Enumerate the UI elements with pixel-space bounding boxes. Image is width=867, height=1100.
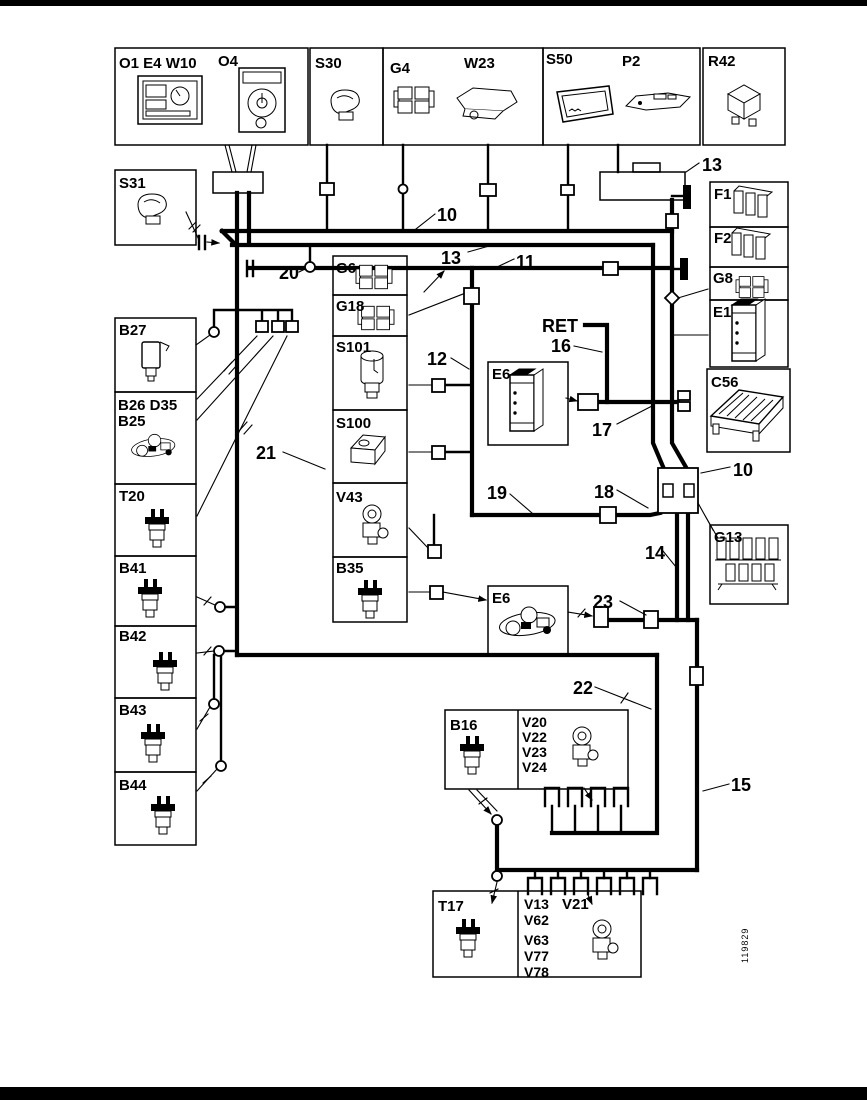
label-e6-upper: E6 xyxy=(492,366,510,383)
label-c56: C56 xyxy=(711,374,739,391)
label-b43: B43 xyxy=(119,702,147,719)
label-v24: V24 xyxy=(522,759,547,775)
wire-label-16: 16 xyxy=(551,336,571,356)
label-v13: V13 xyxy=(524,896,549,912)
label-o4: O4 xyxy=(218,53,239,70)
valve-v43-icon xyxy=(363,505,388,544)
connector-g4-icon xyxy=(394,87,434,113)
label-f1: F1 xyxy=(714,186,732,203)
wire-label-22: 22 xyxy=(573,678,593,698)
wire-label-13-mid: 13 xyxy=(441,248,461,268)
label-b26-d35: B26 D35 xyxy=(118,397,177,414)
wiring-diagram-canvas: O1 E4 W10 O4 S30 G4 W23 S50 P2 R42 S31 F… xyxy=(0,0,867,1100)
label-s100: S100 xyxy=(336,415,371,432)
fuse-f2-icon xyxy=(732,228,770,259)
relay-r42-icon xyxy=(728,85,760,126)
label-b44: B44 xyxy=(119,777,147,794)
label-s31: S31 xyxy=(119,175,146,192)
panel-s50-icon xyxy=(557,86,613,122)
connector-c56-icon xyxy=(711,390,783,441)
label-g8: G8 xyxy=(713,270,733,287)
label-s50: S50 xyxy=(546,51,573,68)
sensor-b16-icon xyxy=(460,736,484,774)
switch-s101-icon xyxy=(361,351,383,398)
ecu-e6-icon xyxy=(510,369,543,431)
label-t20: T20 xyxy=(119,488,145,505)
scan-edge-top xyxy=(0,0,867,6)
label-v20: V20 xyxy=(522,714,547,730)
switch-s30-icon xyxy=(331,90,359,120)
wire-bus-19 xyxy=(472,513,660,515)
document-number: 119829 xyxy=(740,928,750,963)
valve-v20-v24-icon xyxy=(573,727,598,766)
connector-g8-icon xyxy=(736,277,768,298)
label-b25: B25 xyxy=(118,413,146,430)
pump-e6-icon xyxy=(498,607,557,639)
switch-s31-icon xyxy=(138,194,166,224)
wire-label-21: 21 xyxy=(256,443,276,463)
instrument-cluster-icon xyxy=(138,76,202,124)
label-s101: S101 xyxy=(336,339,371,356)
label-g13: G13 xyxy=(714,529,742,546)
wire-label-18: 18 xyxy=(594,482,614,502)
label-e6-lower: E6 xyxy=(492,590,510,607)
wire-label-15: 15 xyxy=(731,775,751,795)
sensor-b41-icon xyxy=(138,579,162,617)
wire-label-13-top: 13 xyxy=(702,155,722,175)
label-g6: G6 xyxy=(336,260,356,277)
board-p2-icon xyxy=(626,93,690,110)
wire-label-23: 23 xyxy=(593,592,613,612)
control-unit-o4-icon xyxy=(239,68,285,132)
wire-label-10-top: 10 xyxy=(437,205,457,225)
sensor-t17-icon xyxy=(456,919,480,957)
wire-label-20: 20 xyxy=(279,263,299,283)
sensor-t20-icon xyxy=(145,509,169,547)
wire-label-10-right: 10 xyxy=(733,460,753,480)
unit-w23-icon xyxy=(457,88,517,119)
sensor-b43-icon xyxy=(141,724,165,762)
label-b35: B35 xyxy=(336,560,364,577)
junction-box-top xyxy=(213,172,263,193)
label-v63: V63 xyxy=(524,932,549,948)
sensor-b44-icon xyxy=(151,796,175,834)
label-b27: B27 xyxy=(119,322,147,339)
label-f2: F2 xyxy=(714,230,732,247)
ground-symbol-bus11 xyxy=(680,258,688,280)
label-s30: S30 xyxy=(315,55,342,72)
sensor-b35-icon xyxy=(358,580,382,618)
label-g4: G4 xyxy=(390,60,411,77)
label-v77: V77 xyxy=(524,948,549,964)
sensor-b42-icon xyxy=(153,652,177,690)
label-b41: B41 xyxy=(119,560,147,577)
wire-label-12: 12 xyxy=(427,349,447,369)
ecu-e1-icon xyxy=(732,299,765,361)
label-w23: W23 xyxy=(464,55,495,72)
label-o1e4w10: O1 E4 W10 xyxy=(119,55,197,72)
ground-symbol-top xyxy=(683,185,691,209)
label-v21: V21 xyxy=(562,896,589,913)
switch-s100-icon xyxy=(351,435,385,464)
inline-connectors xyxy=(209,183,703,881)
fuse-f1-icon xyxy=(734,186,772,217)
label-t17: T17 xyxy=(438,898,464,915)
label-r42: R42 xyxy=(708,53,736,70)
wire-label-19: 19 xyxy=(487,483,507,503)
wire-label-ret: RET xyxy=(542,316,578,336)
label-b42: B42 xyxy=(119,628,147,645)
wire-label-14: 14 xyxy=(645,543,665,563)
label-v22: V22 xyxy=(522,729,547,745)
label-v43: V43 xyxy=(336,489,363,506)
label-e1: E1 xyxy=(713,304,731,321)
wiring-diagram-page: O1 E4 W10 O4 S30 G4 W23 S50 P2 R42 S31 F… xyxy=(0,0,867,1100)
label-v62: V62 xyxy=(524,912,549,928)
connector-box-10 xyxy=(658,468,698,513)
label-v78: V78 xyxy=(524,964,549,980)
wire-label-17: 17 xyxy=(592,420,612,440)
sensor-b26-d35-b25-icon xyxy=(130,434,176,459)
wire-ret xyxy=(585,325,607,402)
label-b16: B16 xyxy=(450,717,478,734)
valve-v21-icon xyxy=(593,920,618,959)
label-p2: P2 xyxy=(622,53,640,70)
sensor-b27-icon xyxy=(142,342,169,381)
wire-label-11: 11 xyxy=(516,252,535,272)
scan-edge-bottom xyxy=(0,1087,867,1100)
label-g18: G18 xyxy=(336,298,364,315)
wire-13-vertical xyxy=(653,245,664,469)
label-v23: V23 xyxy=(522,744,547,760)
connector-box-13-tab xyxy=(633,163,660,172)
